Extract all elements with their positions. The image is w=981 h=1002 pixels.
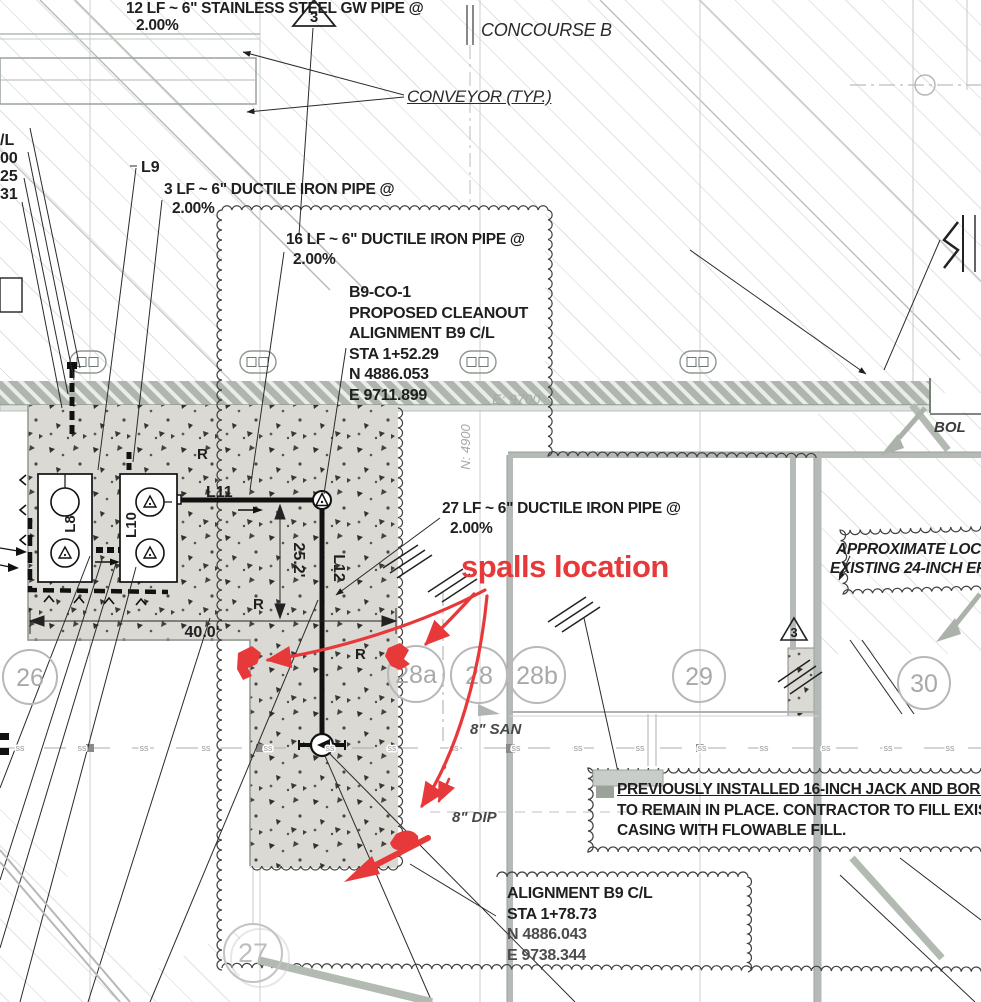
label-l12: L12 <box>330 554 347 582</box>
note-dip3-line1: 3 LF ~ 6" DUCTILE IRON PIPE @ <box>164 181 394 199</box>
delta-right-number: 3 <box>790 625 797 640</box>
ss-label: ss <box>78 743 88 753</box>
note-cleanout-2: ALIGNMENT B9 C/L STA 1+78.73 N 4886.043 … <box>507 884 652 966</box>
grid-bubble-27: 27 <box>238 938 268 968</box>
ss-label: ss <box>698 743 708 753</box>
ss-label: ss <box>16 743 26 753</box>
note-cleanout1-desc: PROPOSED CLEANOUT <box>349 304 528 325</box>
note-dip3-line2: 2.00% <box>172 200 214 218</box>
note-approx-line2: EXISTING 24-INCH EF <box>830 560 981 578</box>
label-r-2: R <box>253 596 264 613</box>
note-approx-line1: APPROXIMATE LOCAT <box>836 541 981 559</box>
existing-structure-piece-small <box>596 786 614 798</box>
note-cleanout1-east: E 9711.899 <box>349 386 528 407</box>
note-cleanout2-align: ALIGNMENT B9 C/L <box>507 884 652 905</box>
edge-fragment-1: /L <box>0 132 14 149</box>
note-casing-line1: PREVIOUSLY INSTALLED 16-INCH JACK AND BO… <box>617 780 981 801</box>
ss-label: ss <box>946 743 956 753</box>
spalls-arrow-2 <box>426 594 474 644</box>
label-conveyor: CONVEYOR (TYP.) <box>407 87 551 107</box>
spalls-dot <box>442 765 446 769</box>
ss-label: ss <box>388 743 398 753</box>
note-casing: PREVIOUSLY INSTALLED 16-INCH JACK AND BO… <box>617 780 981 842</box>
edge-fragment-2: 00 <box>0 150 18 167</box>
label-r-3: R <box>355 646 366 663</box>
dimension-width-label: 40.0' <box>185 624 220 641</box>
note-cleanout-1: B9-CO-1 PROPOSED CLEANOUT ALIGNMENT B9 C… <box>349 283 528 406</box>
label-r-1: R <box>197 446 208 463</box>
spalls-arrow-4 <box>439 779 449 801</box>
grid-bubble-26: 26 <box>16 664 44 692</box>
note-cleanout2-sta: STA 1+78.73 <box>507 905 652 926</box>
grid-bubble-28: 28 <box>465 662 493 690</box>
note-casing-line2: TO REMAIN IN PLACE. CONTRACTOR TO FILL E… <box>617 801 981 822</box>
note-cleanout1-id: B9-CO-1 <box>349 283 528 304</box>
edge-fragment-3: 25 <box>0 168 18 185</box>
drawing-canvas: 3 3 26 28a 28 28b 29 30 27 ss ss ss ss s… <box>0 0 981 1002</box>
note-dip27-line2: 2.00% <box>450 520 492 538</box>
ss-label: ss <box>202 743 212 753</box>
label-northing: N: 4900 <box>458 423 473 469</box>
dimension-height-label: 25.2' <box>290 543 307 578</box>
ss-label: ss <box>512 743 522 753</box>
edge-fragment-4: 31 <box>0 186 18 203</box>
grid-bubble-29: 29 <box>685 663 713 691</box>
label-l9: L9 <box>141 159 160 176</box>
note-cleanout1-sta: STA 1+52.29 <box>349 345 528 366</box>
label-bollard-clipped: BOL <box>934 419 966 436</box>
ss-label: ss <box>264 743 274 753</box>
edge-detail-box <box>0 278 22 312</box>
note-gw-pipe-line1: 12 LF ~ 6" STAINLESS STEEL GW PIPE @ <box>126 0 423 18</box>
ss-label: ss <box>636 743 646 753</box>
note-cleanout1-align: ALIGNMENT B9 C/L <box>349 324 528 345</box>
note-dip27-line1: 27 LF ~ 6" DUCTILE IRON PIPE @ <box>442 500 681 518</box>
label-l8: L8 <box>62 515 79 533</box>
note-cleanout2-north: N 4886.043 <box>507 925 652 946</box>
ss-label: ss <box>574 743 584 753</box>
label-concourse-b: CONCOURSE B <box>481 20 612 41</box>
label-l11: L11 <box>206 484 233 501</box>
grid-bubble-28b: 28b <box>516 662 558 690</box>
spalls-location-label: spalls location <box>461 549 669 585</box>
note-cleanout2-east: E 9738.344 <box>507 946 652 967</box>
spalls-arrow-3 <box>422 596 487 806</box>
note-casing-line3: CASING WITH FLOWABLE FILL. <box>617 821 981 842</box>
ss-label: ss <box>760 743 770 753</box>
note-dip16-line2: 2.00% <box>293 251 335 269</box>
label-8in-dip: 8" DIP <box>452 809 498 826</box>
ss-label: ss <box>326 743 336 753</box>
note-gw-pipe-line2: 2.00% <box>136 17 178 35</box>
ss-label: ss <box>140 743 150 753</box>
note-dip16-line1: 16 LF ~ 6" DUCTILE IRON PIPE @ <box>286 231 525 249</box>
ss-label: ss <box>822 743 832 753</box>
flow-arrow <box>478 704 500 716</box>
note-cleanout1-north: N 4886.053 <box>349 365 528 386</box>
label-l10: L10 <box>123 512 140 538</box>
label-8in-san: 8" SAN <box>470 721 522 738</box>
ss-label: ss <box>884 743 894 753</box>
grid-bubble-30: 30 <box>910 670 938 698</box>
